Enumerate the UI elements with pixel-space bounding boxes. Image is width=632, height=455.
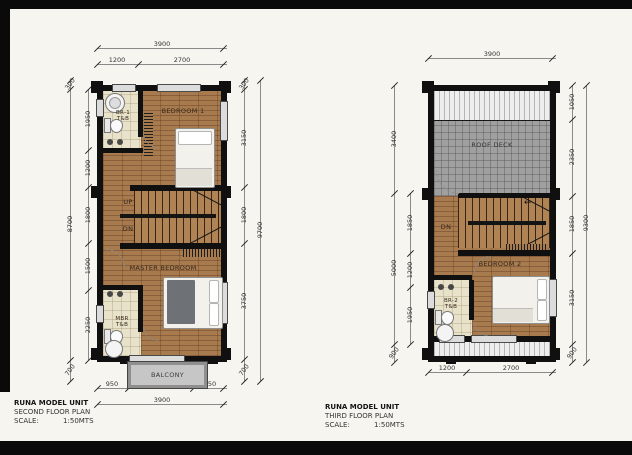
shower-icon: [438, 284, 444, 290]
dim-right-1: 1050: [568, 82, 576, 122]
shower-icon: [107, 291, 113, 297]
window: [97, 306, 103, 322]
dim-left-5: 2250: [84, 305, 92, 345]
dim-line: [97, 388, 227, 389]
window: [97, 100, 103, 116]
dim-left-3: 1800: [84, 195, 92, 235]
dim-right-4: 3150: [568, 278, 576, 318]
dim-bottom-1: 1200: [427, 364, 467, 372]
wall-bottom: [428, 356, 556, 362]
stair-dn-label: DN: [436, 223, 456, 231]
dim-right-2: 1800: [240, 195, 248, 235]
dim-top-2: 2700: [162, 56, 202, 64]
dim-right-total: 9300: [582, 203, 590, 243]
dim-top-1: 1200: [97, 56, 137, 64]
pillow: [537, 300, 547, 321]
second-floor-plan: 3900 1200 2700 950 2000 950 3900 300 870…: [50, 40, 285, 412]
frame-top: [0, 0, 632, 9]
dim-top-total: 3900: [142, 40, 182, 48]
dim-bottom-2: 2700: [491, 364, 531, 372]
frame-left: [0, 0, 10, 392]
window: [550, 280, 556, 316]
bathroom2-label: BR-2 T&B: [440, 298, 462, 310]
dim-line: [428, 58, 556, 59]
wall-left: [428, 85, 434, 362]
dim-line: [97, 64, 227, 65]
dim-bottom-1: 950: [92, 380, 132, 388]
dim-line: [97, 404, 227, 405]
dim-left-outer-1: 3400: [390, 119, 398, 159]
dim-right-total: 9700: [256, 210, 264, 250]
wall-stair-bottom: [120, 243, 221, 249]
dim-tick: [407, 341, 414, 348]
balcony-label: BALCONY: [131, 371, 204, 379]
wall-top: [428, 85, 556, 91]
bedroom1-label: BEDROOM 1: [143, 107, 223, 115]
mbr-bathroom-label: MBR T&B: [111, 316, 133, 328]
dim-left-3: 1950: [406, 295, 414, 335]
pergola-canopy: [434, 342, 550, 356]
dim-left-2: 1200: [84, 148, 92, 188]
wall-stair-top: [458, 193, 550, 198]
wall-stair-bottom: [458, 250, 550, 256]
dim-right-3: 1850: [568, 204, 576, 244]
frame-bottom: [0, 441, 632, 455]
dim-left-2: 1200: [406, 250, 414, 290]
sink-icon: [436, 324, 454, 342]
stair-railing: [468, 221, 546, 225]
dim-right-1: 3150: [240, 118, 248, 158]
pergola-roof: [434, 91, 550, 120]
balcony: BALCONY: [128, 362, 207, 388]
dim-left-outer-2: 5000: [390, 248, 398, 288]
stair-up-label: UP: [118, 198, 138, 206]
master-bedroom-label: MASTER BEDROOM: [123, 264, 203, 272]
shower-icon: [117, 291, 123, 297]
dim-left-1: 1950: [84, 99, 92, 139]
plan-subtitle: SECOND FLOOR PLAN: [14, 408, 94, 417]
bed-throw: [176, 168, 212, 186]
scale-label: SCALE:: [14, 417, 39, 425]
dim-right-3: 3750: [240, 281, 248, 321]
shower-icon: [107, 139, 113, 145]
stair-direction-arrow-icon: ←: [524, 199, 532, 208]
bathroom1-label: BR-1 T&B: [112, 110, 134, 122]
pillow: [178, 131, 212, 145]
wall-right: [550, 85, 556, 362]
shower-icon: [117, 139, 123, 145]
shower-icon: [448, 284, 454, 290]
dim-left-outer-total: 8700: [66, 204, 74, 244]
wall-bath-side: [469, 280, 474, 320]
bedroom2-label: BEDROOM 2: [460, 260, 540, 268]
dim-tick: [257, 378, 264, 385]
sink-icon: [105, 340, 123, 358]
wall-bath1: [103, 148, 143, 153]
plan-title: RUNA MODEL UNIT: [14, 399, 94, 408]
second-floor-title-block: RUNA MODEL UNIT SECOND FLOOR PLAN SCALE:…: [14, 399, 94, 426]
pillow: [209, 303, 219, 326]
scale-value: 1:50MTS: [374, 421, 404, 429]
roof-deck-label: ROOF DECK: [452, 141, 532, 149]
scale-value: 1:50MTS: [63, 417, 93, 425]
stair-railing: [120, 214, 216, 218]
window: [472, 336, 516, 342]
bed-throw: [493, 308, 533, 322]
plan-title: RUNA MODEL UNIT: [325, 403, 405, 412]
scale-label: SCALE:: [325, 421, 350, 429]
dim-left-1: 1850: [406, 203, 414, 243]
dim-line: [97, 48, 227, 49]
dim-tick: [583, 359, 590, 366]
wall-bath2: [103, 285, 143, 290]
window: [428, 292, 434, 308]
stair-dn-label: DN: [118, 225, 138, 233]
dim-right-2: 2350: [568, 137, 576, 177]
dim-bottom-total: 3900: [142, 396, 182, 404]
plan-subtitle: THIRD FLOOR PLAN: [325, 412, 405, 421]
pillow: [537, 279, 547, 300]
third-floor-title-block: RUNA MODEL UNIT THIRD FLOOR PLAN SCALE: …: [325, 403, 405, 430]
sink-basin-icon: [109, 97, 121, 109]
dim-line: [428, 372, 556, 373]
dim-top-total: 3900: [472, 50, 512, 58]
blanket: [167, 280, 195, 324]
dim-left-4: 1500: [84, 246, 92, 286]
window: [158, 85, 200, 91]
pillow: [209, 280, 219, 303]
window: [113, 85, 135, 91]
cabinet-hatch: [183, 249, 221, 257]
wall-bath-top: [434, 275, 472, 280]
third-floor-plan: 3900 1200 2700 3400 5000 900 1850 1200 1…: [380, 40, 615, 412]
